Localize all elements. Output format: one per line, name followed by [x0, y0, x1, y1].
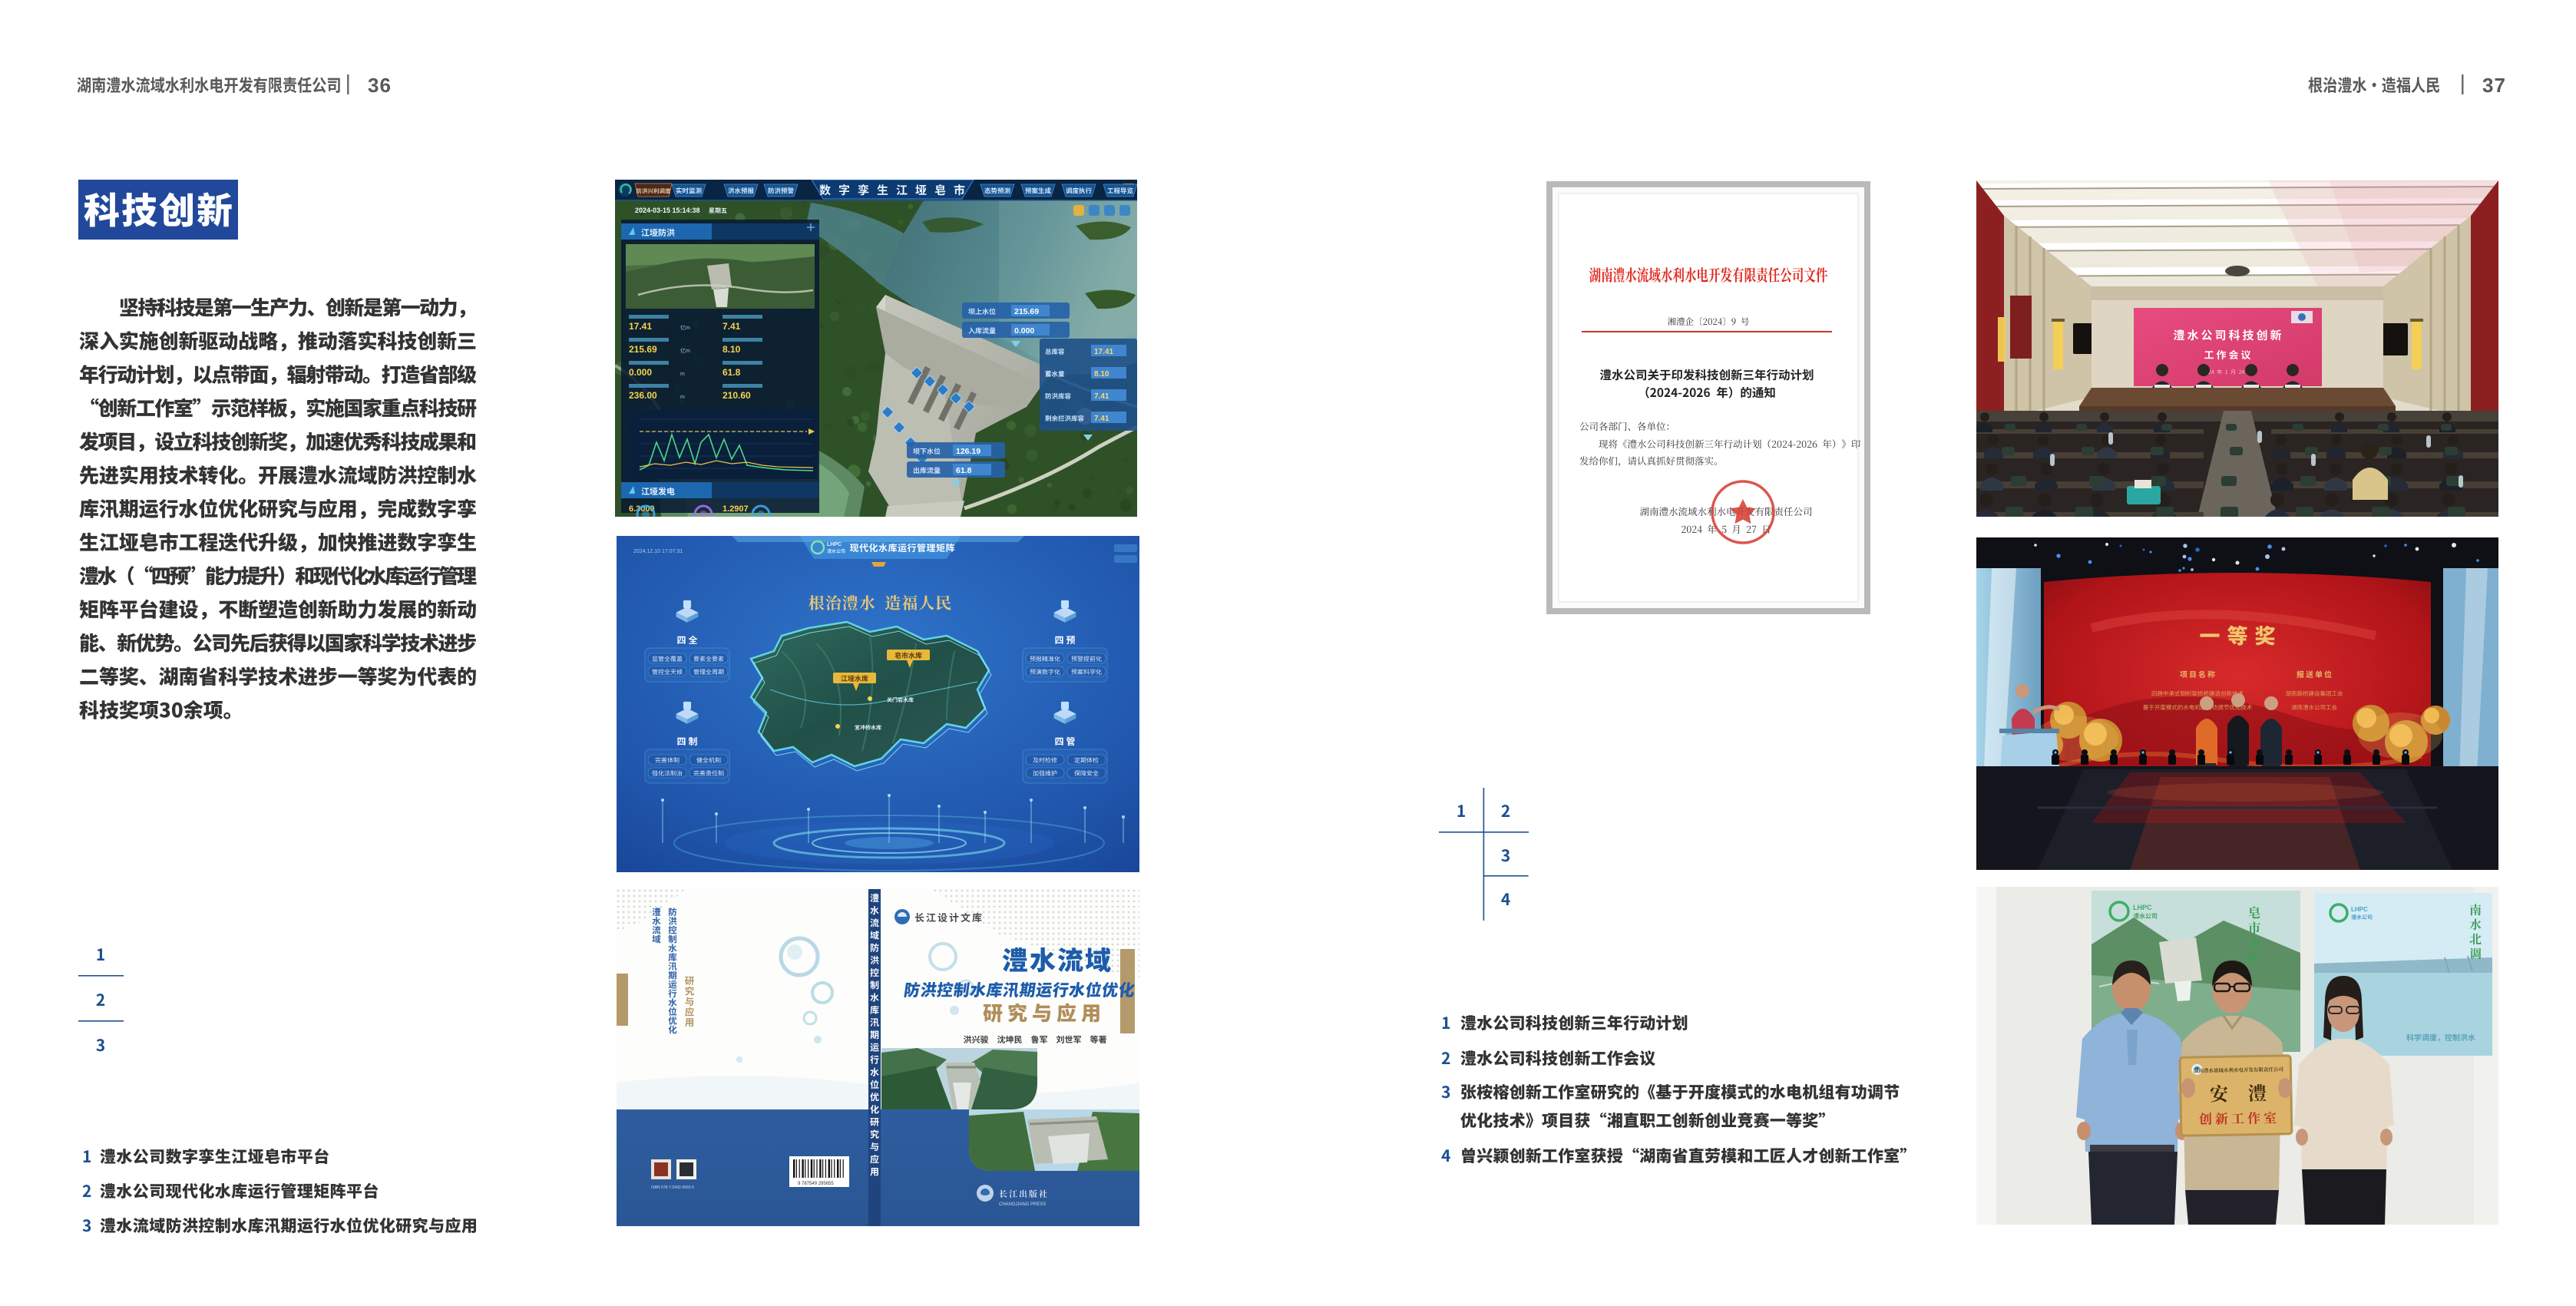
svg-text:CHANGJIANG PRESS: CHANGJIANG PRESS	[999, 1202, 1046, 1207]
svg-text:0.000: 0.000	[1014, 326, 1034, 336]
svg-text:7.41: 7.41	[723, 321, 741, 332]
svg-text:210.60: 210.60	[723, 390, 751, 401]
svg-text:236.00: 236.00	[629, 390, 657, 401]
svg-text:9 787549 295655: 9 787549 295655	[798, 1182, 834, 1186]
svg-text:36: 36	[368, 74, 392, 97]
svg-text:亿m: 亿m	[680, 324, 690, 331]
svg-text:8.10: 8.10	[723, 344, 741, 355]
svg-text:0.000: 0.000	[629, 367, 652, 378]
svg-text:7.41: 7.41	[1094, 415, 1109, 423]
svg-text:7.41: 7.41	[1094, 392, 1109, 401]
svg-text:2024-03-15 15:14:38: 2024-03-15 15:14:38	[635, 207, 700, 214]
svg-text:2024.12.10 17:07:31: 2024.12.10 17:07:31	[633, 549, 683, 554]
svg-text:LHPC: LHPC	[2351, 906, 2368, 913]
svg-text:61.8: 61.8	[723, 367, 741, 378]
svg-text:亿m: 亿m	[680, 347, 690, 354]
svg-text:126.19: 126.19	[956, 447, 980, 456]
svg-text:61.8: 61.8	[956, 466, 972, 475]
svg-text:1.2907: 1.2907	[723, 504, 749, 514]
svg-text:ISBN 978-7-5492-9565-5: ISBN 978-7-5492-9565-5	[651, 1185, 694, 1190]
svg-text:17.41: 17.41	[629, 321, 652, 332]
svg-text:215.69: 215.69	[1014, 307, 1039, 316]
svg-text:37: 37	[2482, 74, 2506, 97]
svg-text:215.69: 215.69	[629, 344, 657, 355]
svg-text:8.10: 8.10	[1094, 370, 1109, 379]
svg-text:m: m	[680, 395, 685, 400]
svg-text:LHPC: LHPC	[2133, 904, 2152, 911]
svg-text:m: m	[680, 372, 685, 377]
svg-text:LHPC: LHPC	[827, 542, 842, 547]
svg-text:17.41: 17.41	[1094, 348, 1113, 356]
